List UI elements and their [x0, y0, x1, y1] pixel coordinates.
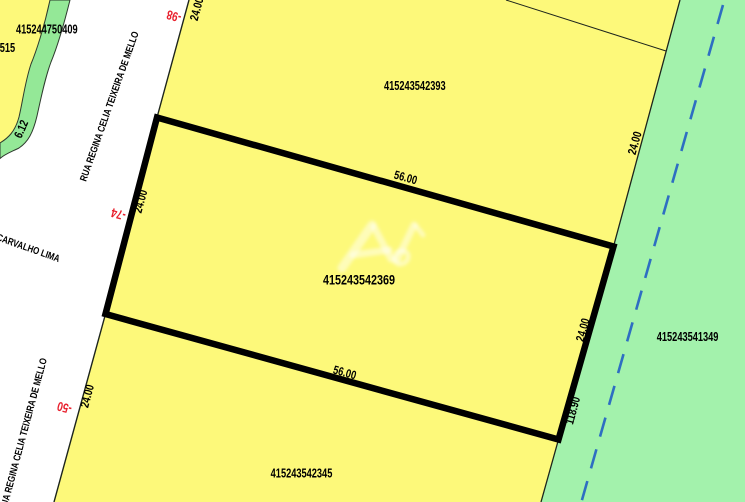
- svg-text:415244750409: 415244750409: [16, 23, 78, 37]
- svg-text:415243542393: 415243542393: [384, 80, 446, 94]
- svg-text:415243542345: 415243542345: [271, 467, 333, 481]
- svg-text:415243542369: 415243542369: [323, 272, 395, 287]
- svg-text:515: 515: [0, 42, 15, 56]
- svg-text:415243541349: 415243541349: [657, 331, 719, 345]
